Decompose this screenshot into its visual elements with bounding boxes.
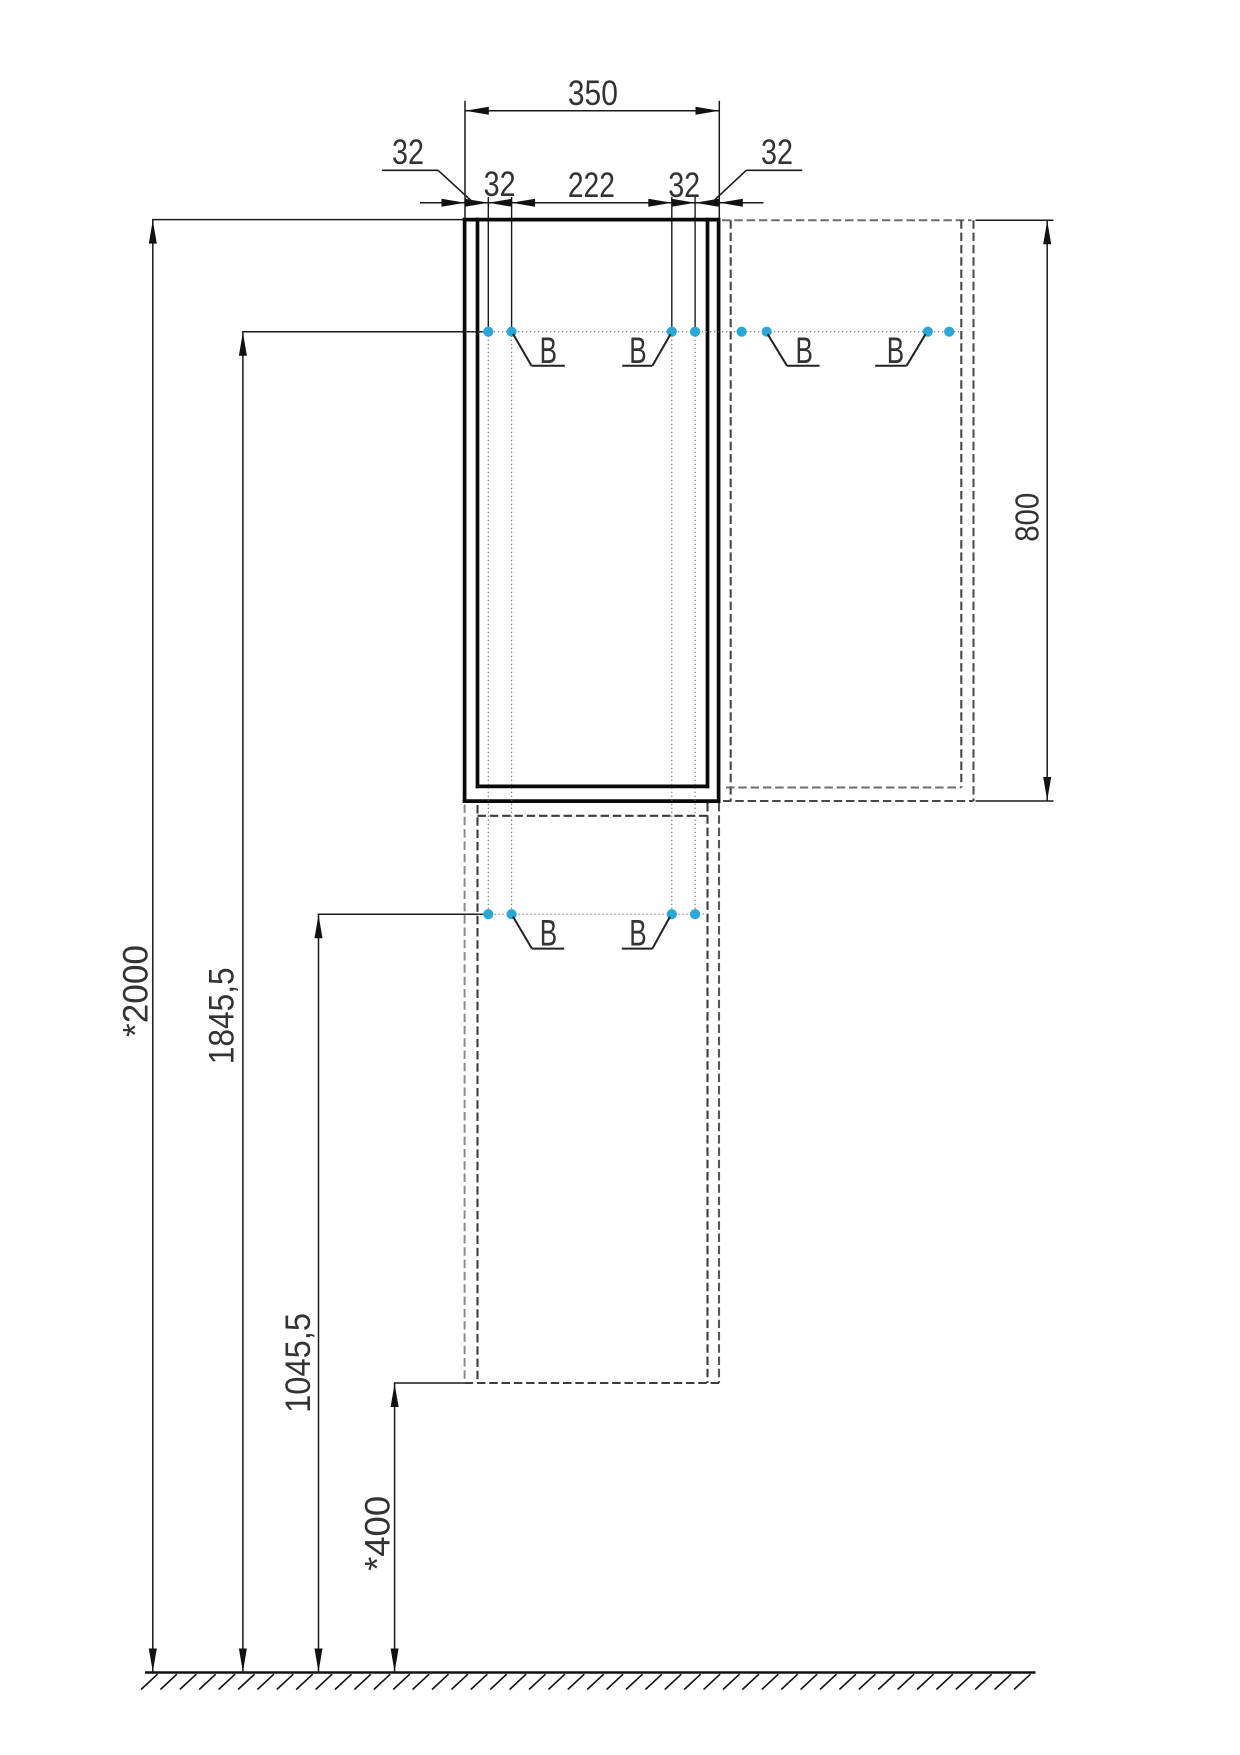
svg-text:B: B bbox=[629, 330, 646, 371]
svg-text:800: 800 bbox=[1009, 493, 1046, 542]
svg-text:*2000: *2000 bbox=[117, 945, 156, 1037]
svg-text:*400: *400 bbox=[359, 1496, 398, 1571]
svg-text:32: 32 bbox=[392, 133, 424, 172]
svg-text:1045,5: 1045,5 bbox=[279, 1313, 318, 1413]
svg-text:32: 32 bbox=[761, 133, 793, 172]
svg-text:B: B bbox=[796, 330, 813, 371]
svg-text:B: B bbox=[629, 913, 646, 954]
svg-text:32: 32 bbox=[668, 166, 700, 205]
svg-text:B: B bbox=[540, 913, 557, 954]
svg-text:B: B bbox=[887, 330, 904, 371]
svg-text:B: B bbox=[540, 330, 557, 371]
svg-text:1845,5: 1845,5 bbox=[203, 967, 242, 1064]
svg-text:32: 32 bbox=[484, 165, 516, 204]
svg-text:350: 350 bbox=[568, 74, 618, 113]
svg-text:222: 222 bbox=[568, 166, 615, 205]
